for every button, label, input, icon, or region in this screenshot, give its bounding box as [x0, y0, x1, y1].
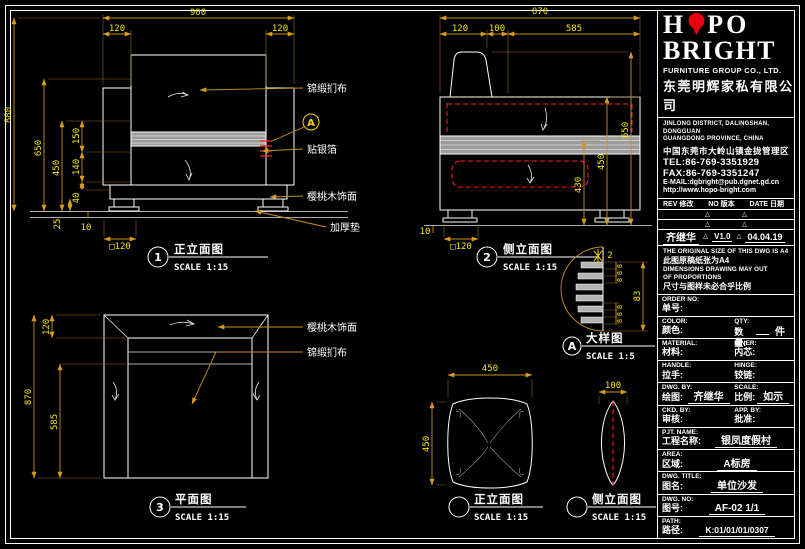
view-number: 3 — [156, 501, 164, 514]
field-dwgby-scale: DWG. BY: 绘图:齐继华 SCALE: 比例:如示 — [658, 382, 794, 404]
field-handle-hinge: HANDLE: 拉手: HINGE: 铰链: — [658, 360, 794, 382]
version: V1.0 — [712, 232, 732, 242]
label-veneer: 樱桃木饰面 — [307, 190, 357, 203]
field-label-cn: 工程名称: — [662, 436, 701, 447]
view-scale: SCALE 1:5 — [586, 352, 635, 362]
blank-underline — [756, 325, 769, 335]
plan-seat-fabric — [128, 338, 252, 478]
website: http://www.hopo-bright.com — [663, 187, 794, 196]
dim-text: 120 — [109, 24, 125, 34]
foil-strip — [576, 295, 603, 301]
logo-text-bright: BRIGHT — [663, 38, 794, 63]
company-name-en: FURNITURE GROUP CO., LTD. — [658, 63, 794, 76]
triangle-icon: △ — [742, 212, 747, 219]
field-label-cn: 单号: — [662, 303, 683, 314]
field-label-cn: 区域: — [662, 459, 683, 470]
foil-strip — [576, 284, 603, 290]
dim-text: 900 — [190, 8, 206, 18]
brand-logo: H PO BRIGHT — [658, 11, 794, 63]
dim-text: 430 — [574, 177, 584, 193]
dim-text: 8 — [616, 271, 624, 275]
field-value: 单位沙发 — [711, 481, 763, 493]
dim-text: 650 — [621, 122, 631, 138]
dim-text: 585 — [50, 414, 60, 430]
dim-text: 40 — [72, 193, 82, 204]
grain-arrow-icon — [185, 160, 192, 180]
view-detail-a: 2 8 8 8 8 8 8 83 A 大样图 SCALE 1:5 — [561, 247, 655, 362]
sofa-back-fabric — [131, 55, 266, 185]
ground-line — [30, 212, 348, 218]
dim-text: 8 — [616, 305, 624, 309]
triangle-icon: △ — [736, 234, 741, 241]
note-en: THE ORIGINAL SIZE OF THIS DWG IS A4 — [663, 248, 794, 256]
field-label-cn: 路径: — [662, 525, 683, 536]
field-value: AF-02 1/1 — [709, 503, 765, 515]
dim-text: 120 — [272, 24, 288, 34]
dim-text: 8 — [616, 319, 624, 323]
foil-strip — [581, 262, 603, 268]
dim-text: 650 — [34, 140, 44, 156]
triangle-icon: △ — [705, 222, 710, 229]
field-ckd-app: CKD. BY: 审核: APP. BY: 批准: — [658, 405, 794, 427]
dim-text: 25 — [53, 219, 63, 230]
fax: FAX:86-769-3351247 — [663, 168, 794, 179]
revision-row-current: 齐继华 △ V1.0 △ 04.04.19 — [658, 230, 794, 246]
revision-row-empty: △ △ — [658, 210, 794, 220]
foil-strip — [578, 273, 603, 279]
grain-arrow-icon — [112, 382, 119, 400]
dim-text: 870 — [24, 389, 34, 405]
view-scale: SCALE 1:15 — [592, 513, 646, 523]
dim-text: 8 — [616, 278, 624, 282]
revision-row-empty: △ △ — [658, 220, 794, 230]
sofa-plinth — [110, 185, 287, 199]
view-cushion-side: 100 侧立面图 SCALE 1:15 — [567, 381, 656, 523]
field-label-en: DWG. NO: — [662, 496, 791, 504]
field-label-cn: 拉手: — [662, 370, 683, 381]
dim-text: 120 — [42, 319, 52, 335]
field-label-en: HINGE: — [734, 362, 791, 370]
label-foil: 贴银箔 — [307, 143, 337, 156]
sofa-foot — [263, 199, 283, 207]
label-fabric: 锦缎扪布 — [307, 82, 347, 95]
field-color-qty: COLOR: 颜色: QTY: 数量:件 — [658, 316, 794, 338]
grain-arrow-icon — [541, 108, 547, 130]
field-label-cn: 图名: — [662, 481, 683, 492]
field-label-cn: 绘图: — [662, 392, 683, 403]
grain-arrow-icon — [170, 320, 194, 326]
foot-pad — [109, 207, 139, 211]
field-table: ORDER NO: 单号: COLOR: 颜色: QTY: 数量:件 MATER… — [658, 294, 794, 539]
foil-strip — [578, 306, 603, 312]
dim-text: 10 — [81, 223, 92, 233]
armrest-profile — [450, 52, 492, 97]
field-value: A标房 — [717, 459, 756, 471]
hidden-line — [447, 103, 632, 132]
dim-text: 10 — [420, 227, 431, 237]
foot-pad — [258, 207, 288, 211]
field-label-en: DWG. TITLE: — [662, 473, 791, 481]
phone: TEL:86-769-3351929 — [663, 157, 794, 168]
view-number: 2 — [483, 251, 491, 264]
view-front-elevation: 900 120 120 880 650 450 150 140 40 25 10… — [4, 8, 360, 273]
field-project-name: PJT. NAME: 工程名称:银凤度假村 — [658, 427, 794, 449]
field-label-cn: 审核: — [662, 414, 683, 425]
field-label-cn: 铰链: — [734, 370, 755, 381]
dim-text: 450 — [422, 436, 432, 452]
dim-text: 150 — [72, 128, 82, 144]
sofa-arm-right — [266, 88, 294, 185]
field-order-no: ORDER NO: 单号: — [658, 294, 794, 316]
dim-text: 450 — [52, 160, 62, 176]
view-side-elevation: 870 120 100 585 430 450 650 10 □120 2 侧立… — [420, 7, 652, 273]
email: E-MAIL:dgbright@pub.dgnet.gd.cn — [663, 179, 794, 188]
field-path: PATH: 路径:K:01/01/01/0307 — [658, 516, 794, 538]
triangle-icon: △ — [703, 234, 708, 241]
field-label-en: QTY: — [734, 318, 791, 326]
view-title: 侧立面图 — [592, 492, 642, 506]
note-en: DIMENSIONS DRAWING MAY OUT — [663, 266, 794, 274]
dim-text: 870 — [532, 7, 548, 17]
foil-strip — [581, 317, 603, 323]
title-block: H PO BRIGHT FURNITURE GROUP CO., LTD. 东莞… — [658, 11, 794, 538]
triangle-icon: △ — [742, 222, 747, 229]
field-value: K:01/01/01/0307 — [699, 525, 774, 537]
view-title: 平面图 — [175, 492, 213, 506]
sofa-foot — [448, 210, 472, 218]
dim-text: 100 — [605, 381, 621, 391]
dim-text: 8 — [616, 264, 624, 268]
view-plan: 120 870 585 樱桃木饰面 锦缎扪布 3 平面图 SCALE 1:15 — [24, 315, 357, 523]
view-title: 正立面图 — [174, 242, 224, 256]
field-label-cn: 图号: — [662, 503, 683, 514]
rev-col: REV 修改 — [663, 199, 693, 209]
field-label-en: DWG. BY: — [662, 384, 734, 392]
field-value: 如示 — [757, 392, 789, 404]
dim-text: 450 — [482, 364, 498, 374]
field-label-cn: 比例: — [734, 392, 755, 403]
dim-text: 83 — [633, 291, 643, 302]
field-area: AREA: 区域:A标房 — [658, 449, 794, 471]
dim-text: 100 — [489, 24, 505, 34]
contact-block: JINLONG DISTRICT, DALINGSHAN, DONGGUAN G… — [658, 117, 794, 198]
field-dwg-no: DWG. NO: 图号:AF-02 1/1 — [658, 494, 794, 516]
view-number-bubble — [567, 497, 587, 517]
sofa-foot — [600, 210, 624, 218]
star-marker-icon — [594, 249, 602, 263]
notes-block: THE ORIGINAL SIZE OF THIS DWG IS A4 此图原稿… — [658, 246, 794, 294]
plan-band-lines — [128, 352, 252, 364]
date-col: DATE 日期 — [750, 199, 784, 209]
foot-pad — [595, 218, 629, 222]
dim-text: 140 — [72, 159, 82, 175]
foot-pad — [443, 218, 477, 222]
field-label-en: SCALE: — [734, 384, 791, 392]
dim-text: 120 — [452, 24, 468, 34]
dim-text: 450 — [597, 154, 607, 170]
plan-outer — [104, 315, 268, 478]
detail-ref-letter: A — [307, 118, 315, 129]
logo-balloon-icon — [687, 12, 706, 36]
grain-arrow-icon — [253, 382, 260, 400]
view-scale: SCALE 1:15 — [175, 513, 229, 523]
field-value: 齐继华 — [688, 392, 730, 404]
view-scale: SCALE 1:15 — [474, 513, 528, 523]
dim-text: 8 — [616, 312, 624, 316]
field-label-cn: 材料: — [662, 347, 683, 358]
no-col: NO 版本 — [708, 199, 734, 209]
grain-arrow-icon — [168, 92, 188, 97]
revision-header: REV 修改 NO 版本 DATE 日期 — [658, 198, 794, 210]
label-fabric: 锦缎扪布 — [307, 346, 347, 359]
address-cn: 中国东莞市大岭山镇金拢管理区 — [663, 146, 794, 157]
dim-text: 585 — [566, 24, 582, 34]
view-scale: SCALE 1:15 — [174, 263, 228, 273]
dim-text: 2 — [607, 251, 612, 261]
field-material-inner: MATERIAL: 材料: INNER: 内芯: — [658, 338, 794, 360]
view-title: 侧立面图 — [503, 242, 553, 256]
address-en-1: JINLONG DISTRICT, DALINGSHAN, DONGGUAN — [663, 121, 794, 136]
view-number-bubble — [449, 497, 469, 517]
view-title: 正立面图 — [474, 492, 524, 506]
dim-text: 880 — [4, 107, 14, 123]
sofa-foot — [114, 199, 134, 207]
field-label-en: ORDER NO: — [662, 296, 791, 304]
company-name-cn: 东莞明辉家私有限公司 — [658, 76, 794, 117]
mitre-lines — [104, 315, 268, 338]
hidden-line — [452, 161, 588, 187]
note-cn: 此图原稿纸张为A4 — [663, 256, 794, 267]
triangle-icon: △ — [705, 212, 710, 219]
view-cushion-front: 450 450 正立面图 SCALE 1:15 — [422, 364, 543, 523]
view-number: A — [568, 340, 577, 353]
label-pad: 加厚垫 — [330, 221, 360, 234]
cad-sheet: 900 120 120 880 650 450 150 140 40 25 10… — [0, 0, 805, 549]
drafter-name: 齐继华 — [663, 229, 699, 245]
field-label-cn: 颜色: — [662, 325, 683, 336]
field-dwg-title: DWG. TITLE: 图名:单位沙发 — [658, 471, 794, 493]
dim-text: □120 — [450, 242, 472, 252]
view-title: 大样图 — [586, 331, 624, 345]
label-veneer: 樱桃木饰面 — [307, 321, 357, 334]
view-number: 1 — [154, 251, 162, 264]
field-label-cn: 批准: — [734, 414, 755, 425]
field-label-en: AREA: — [662, 451, 791, 459]
address-en-2: GUANGDONG PROVINCE, CHINA — [663, 136, 794, 144]
note-en: OF PROPORTIONS — [663, 274, 794, 282]
field-label-cn: 内芯: — [734, 347, 755, 358]
dim-text: □120 — [109, 242, 131, 252]
note-cn: 尺寸与图样未必合乎比例 — [663, 282, 794, 293]
sofa-arm-left — [103, 88, 131, 185]
silver-foil-band — [131, 132, 266, 146]
view-scale: SCALE 1:15 — [503, 263, 557, 273]
field-label-en: HANDLE: — [662, 362, 734, 370]
grain-arrow-icon — [527, 165, 534, 183]
field-value: 银凤度假村 — [715, 436, 777, 448]
revision-date: 04.04.19 — [745, 232, 784, 243]
